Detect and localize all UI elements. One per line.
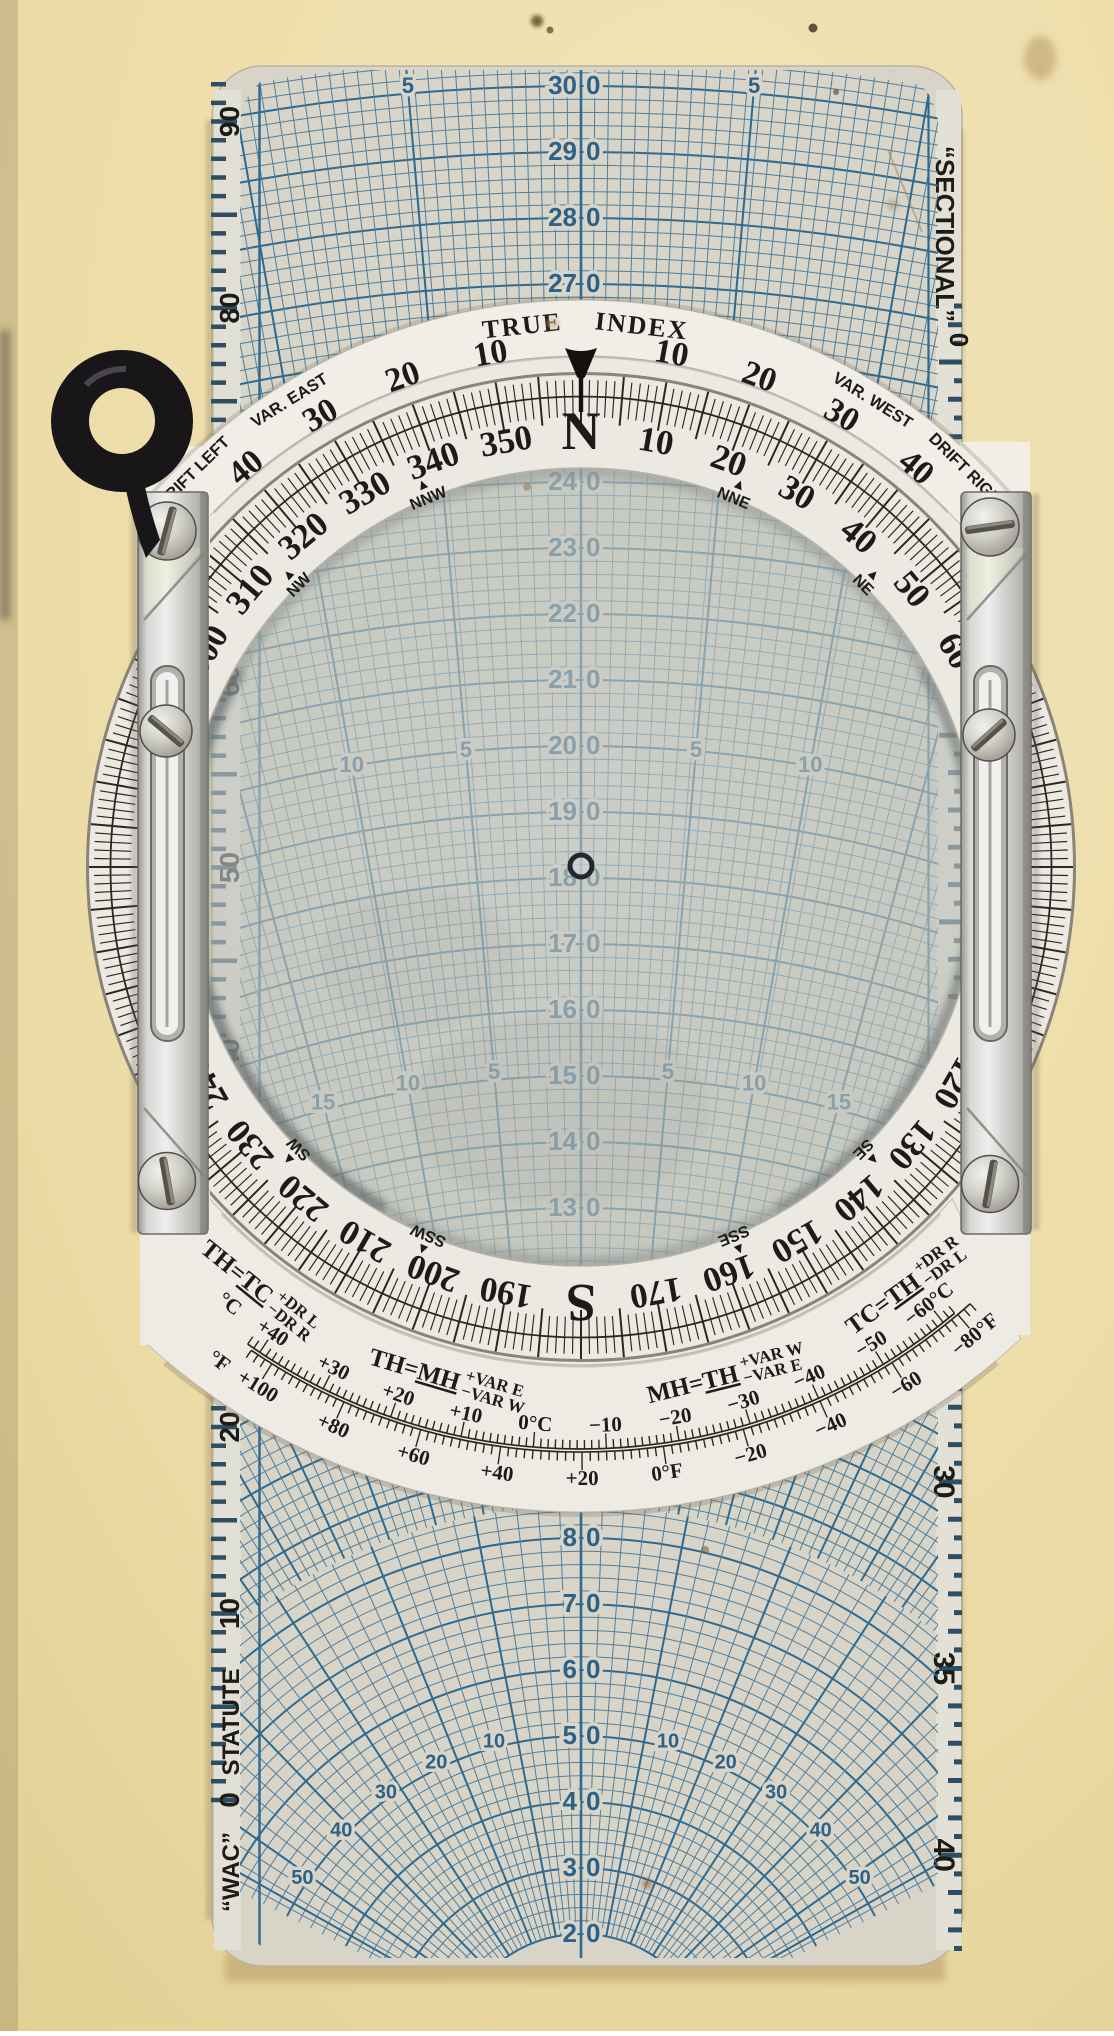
svg-text:28: 28 xyxy=(548,202,577,232)
svg-text:0: 0 xyxy=(586,1786,600,1816)
svg-text:4: 4 xyxy=(563,1786,578,1816)
svg-text:20: 20 xyxy=(425,1752,447,1774)
svg-text:20: 20 xyxy=(715,1752,737,1774)
svg-text:2: 2 xyxy=(563,1918,577,1948)
svg-text:3: 3 xyxy=(563,1852,577,1882)
svg-text:5: 5 xyxy=(402,73,414,98)
svg-text:0: 0 xyxy=(586,70,600,100)
svg-text:0: 0 xyxy=(944,333,974,347)
svg-text:10: 10 xyxy=(471,332,511,374)
svg-text:10: 10 xyxy=(652,332,692,374)
svg-text:30: 30 xyxy=(765,1782,787,1804)
svg-text:10: 10 xyxy=(483,1730,505,1752)
svg-text:5: 5 xyxy=(563,1720,577,1750)
svg-text:27: 27 xyxy=(548,268,577,298)
svg-text:10: 10 xyxy=(657,1730,679,1752)
svg-text:6: 6 xyxy=(563,1654,577,1684)
svg-text:STATUTE: STATUTE xyxy=(218,1668,245,1775)
svg-text:8: 8 xyxy=(563,1522,577,1552)
svg-text:30: 30 xyxy=(375,1782,397,1804)
svg-text:40: 40 xyxy=(810,1820,832,1842)
svg-text:0: 0 xyxy=(586,1654,600,1684)
svg-text:+20: +20 xyxy=(566,1466,599,1490)
svg-text:S: S xyxy=(566,1273,596,1333)
svg-text:0: 0 xyxy=(586,1588,600,1618)
svg-text:80: 80 xyxy=(214,292,245,323)
svg-text:+40: +40 xyxy=(479,1458,515,1486)
svg-text:5: 5 xyxy=(748,73,760,98)
svg-text:0°C: 0°C xyxy=(517,1410,553,1437)
svg-text:10: 10 xyxy=(635,419,676,463)
svg-text:“WAC”: “WAC” xyxy=(218,1832,245,1912)
svg-text:50: 50 xyxy=(848,1867,870,1889)
svg-text:0: 0 xyxy=(586,1918,600,1948)
svg-text:0: 0 xyxy=(586,1852,600,1882)
svg-text:“SECTIONAL”: “SECTIONAL” xyxy=(930,146,960,322)
svg-text:0: 0 xyxy=(586,1720,600,1750)
svg-text:−10: −10 xyxy=(588,1412,622,1437)
svg-text:35: 35 xyxy=(927,1652,960,1685)
svg-text:29: 29 xyxy=(548,136,577,166)
svg-text:50: 50 xyxy=(291,1867,313,1889)
svg-text:0: 0 xyxy=(586,268,600,298)
svg-text:40: 40 xyxy=(330,1820,352,1842)
svg-text:0: 0 xyxy=(586,136,600,166)
svg-text:0: 0 xyxy=(586,202,600,232)
svg-text:7: 7 xyxy=(563,1588,577,1618)
svg-text:0: 0 xyxy=(586,1522,600,1552)
svg-text:0°F: 0°F xyxy=(650,1458,685,1486)
svg-text:30: 30 xyxy=(548,70,577,100)
